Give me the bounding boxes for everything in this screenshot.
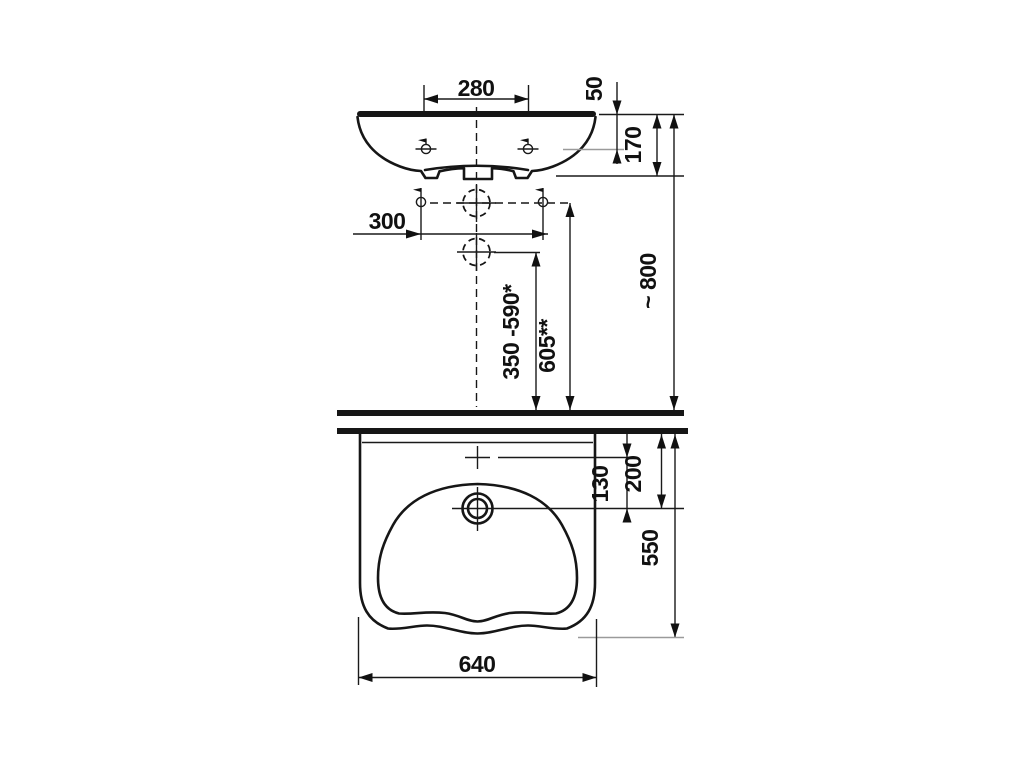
dim-label-550: 550 bbox=[637, 530, 663, 567]
dim-label-350-590: 350 -590* bbox=[498, 284, 524, 380]
washbasin-drawing: 280 50 170 ~ 800 bbox=[0, 0, 1024, 768]
dim-label-800: ~ 800 bbox=[635, 253, 661, 309]
dim-label-170: 170 bbox=[620, 127, 646, 164]
dimension-50: 50 bbox=[581, 77, 622, 164]
tap-hole-marker-right-icon bbox=[518, 139, 539, 154]
supply-connection-symbol bbox=[457, 184, 496, 222]
dimension-300: 300 bbox=[353, 208, 548, 239]
plan-view: 130 200 550 640 bbox=[359, 434, 685, 687]
dimension-170: 170 bbox=[620, 115, 662, 177]
installation-dimensions: 300 350 -590* 605** bbox=[353, 184, 575, 410]
technical-drawing-page: 280 50 170 ~ 800 bbox=[0, 0, 1024, 768]
dim-label-640: 640 bbox=[459, 651, 496, 677]
dim-label-50: 50 bbox=[581, 77, 607, 102]
dimension-280: 280 bbox=[424, 75, 529, 111]
dim-label-605: 605** bbox=[534, 319, 560, 373]
dim-label-300: 300 bbox=[369, 208, 406, 234]
dim-label-130: 130 bbox=[587, 466, 613, 503]
dim-label-200: 200 bbox=[620, 456, 646, 493]
tap-hole-cross bbox=[465, 446, 490, 469]
dim-label-280: 280 bbox=[458, 75, 495, 101]
drain-connection-symbol bbox=[457, 233, 496, 271]
tap-hole-marker-left-icon bbox=[416, 139, 437, 154]
